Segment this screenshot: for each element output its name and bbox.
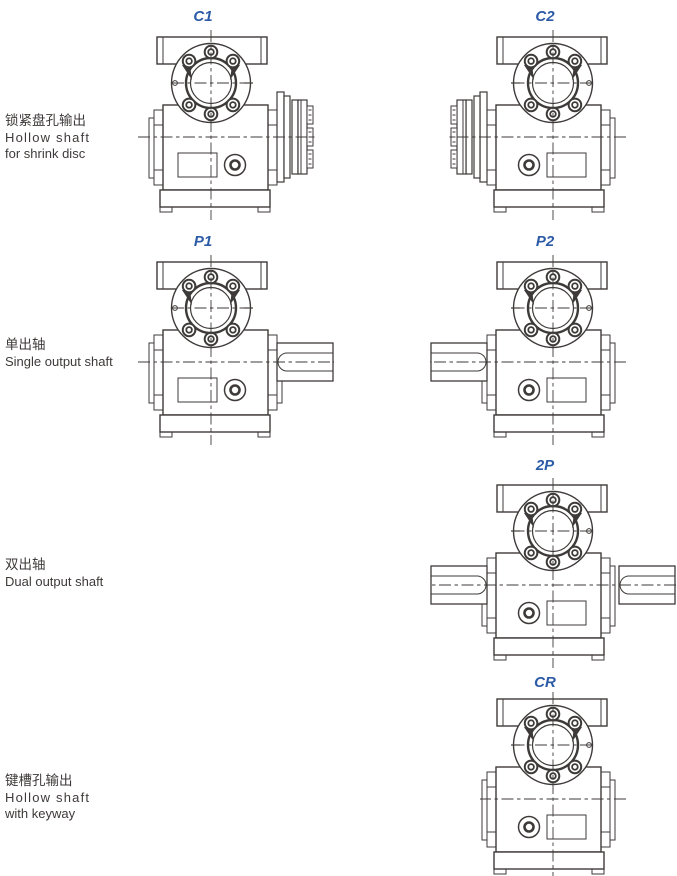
figure-CR: CR	[428, 674, 677, 876]
figure-code-label: 2P	[420, 457, 670, 474]
figure-C2: C2	[428, 8, 677, 226]
row-label-keyway: 键槽孔输出 Hollow shaft with keyway	[5, 773, 180, 823]
label-en-line1: Dual output shaft	[5, 574, 180, 591]
gearbox-drawing-P2	[428, 255, 677, 455]
label-en-line1: Hollow shaft	[5, 790, 180, 807]
row-label-dual-output: 双出轴 Dual output shaft	[5, 557, 180, 590]
figure-C1: C1	[86, 8, 336, 226]
label-zh: 键槽孔输出	[5, 773, 180, 790]
figure-code-label: P2	[420, 233, 670, 250]
figure-code-label: C1	[78, 8, 328, 25]
gearbox-drawing-C1	[86, 30, 336, 230]
gearbox-drawing-2P	[428, 478, 677, 678]
figure-P2: P2	[428, 233, 677, 451]
figure-code-label: C2	[420, 8, 670, 25]
gearbox-drawing-P1	[86, 255, 336, 455]
figure-code-label: CR	[420, 674, 670, 691]
gearbox-drawing-CR	[428, 692, 677, 876]
figure-code-label: P1	[78, 233, 328, 250]
gearbox-drawing-C2	[428, 30, 677, 230]
label-zh: 双出轴	[5, 557, 180, 574]
label-en-line2: with keyway	[5, 806, 180, 823]
figure-2P: 2P	[428, 457, 677, 675]
figure-P1: P1	[86, 233, 336, 451]
catalog-page: 锁紧盘孔输出 Hollow shaft for shrink disc 单出轴 …	[0, 0, 677, 876]
